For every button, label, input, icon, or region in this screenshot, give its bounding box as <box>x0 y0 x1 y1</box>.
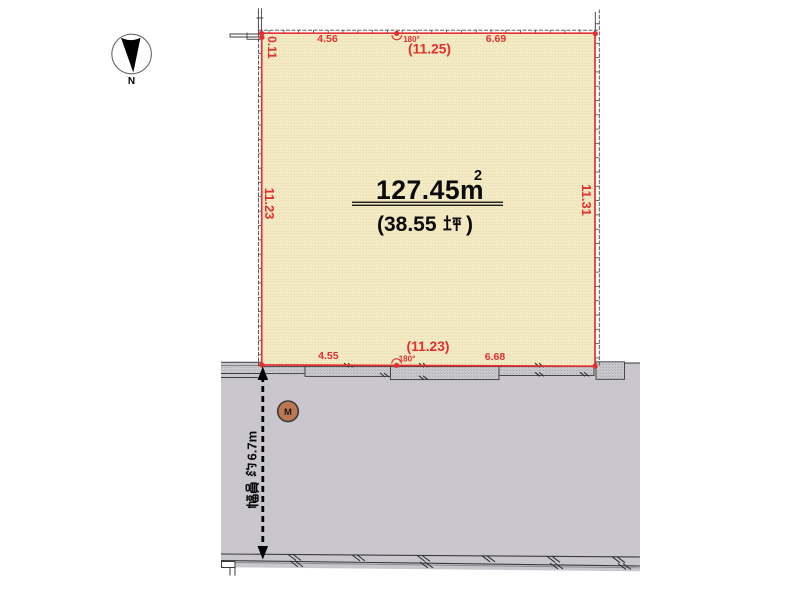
svg-text:6.68: 6.68 <box>485 351 506 363</box>
svg-text:6.69: 6.69 <box>486 33 507 45</box>
svg-text:(11.23): (11.23) <box>407 339 450 354</box>
svg-text:M: M <box>284 407 292 418</box>
svg-text:11.31: 11.31 <box>579 184 594 216</box>
svg-text:4.55: 4.55 <box>318 350 339 362</box>
svg-text:(38.55: (38.55 <box>377 213 437 236</box>
svg-text:(11.25): (11.25) <box>408 42 451 57</box>
svg-text:127.45m: 127.45m <box>376 175 484 205</box>
svg-text:): ) <box>466 213 473 236</box>
svg-text:11.23: 11.23 <box>262 188 277 220</box>
svg-text:N: N <box>128 76 135 87</box>
svg-text:180°: 180° <box>399 354 416 363</box>
svg-text:4.56: 4.56 <box>317 33 338 45</box>
svg-text:2: 2 <box>474 168 482 184</box>
svg-text:0.11: 0.11 <box>265 36 279 59</box>
svg-text:6.7m: 6.7m <box>245 431 260 461</box>
